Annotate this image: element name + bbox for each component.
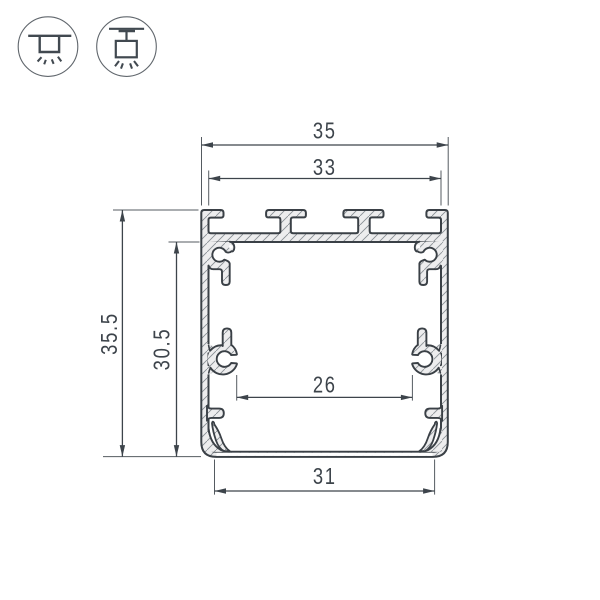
svg-text:26: 26 — [313, 373, 337, 398]
svg-text:35.5: 35.5 — [97, 312, 122, 355]
svg-text:31: 31 — [313, 464, 337, 489]
svg-text:33: 33 — [313, 155, 337, 180]
svg-text:35: 35 — [313, 119, 337, 144]
svg-text:30.5: 30.5 — [150, 328, 175, 371]
